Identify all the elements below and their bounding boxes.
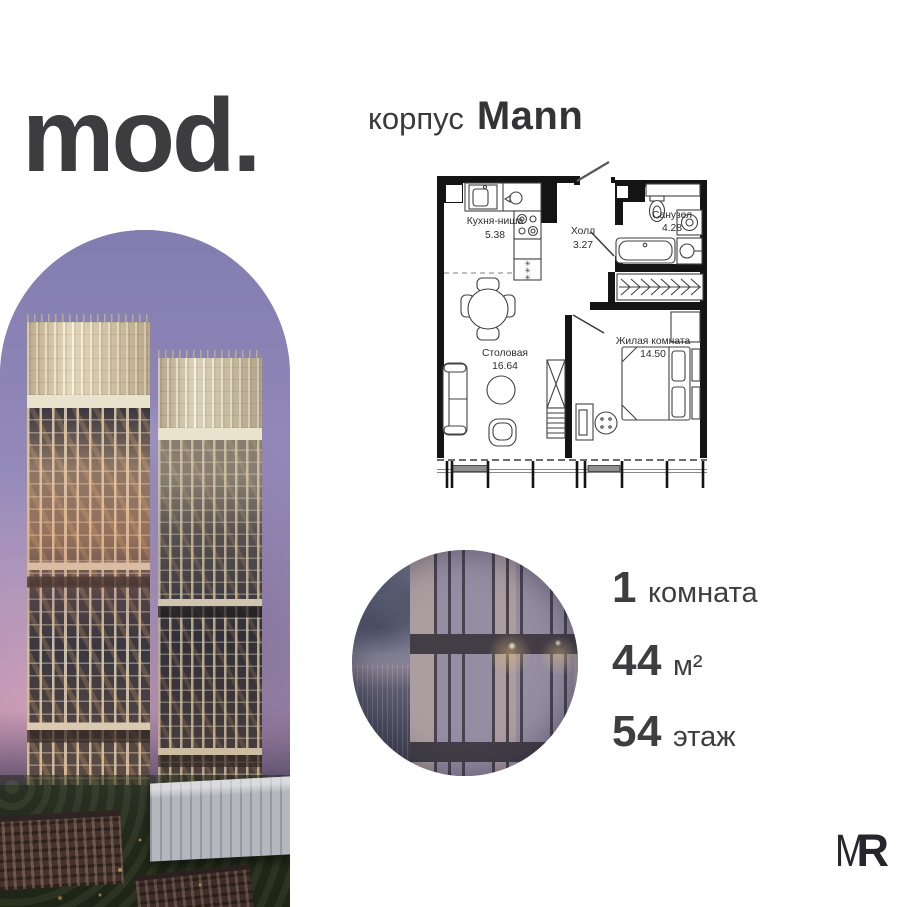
rooms-value: 1: [612, 566, 637, 610]
spec-area: 44 м²: [612, 639, 703, 683]
mr-logo-m: M: [835, 828, 866, 873]
dining-area: 16.64: [492, 361, 518, 372]
floor-unit: этаж: [673, 721, 736, 754]
floor-plan: ✳ ✳ ✳: [431, 128, 713, 490]
mod-logo: mod.: [22, 84, 258, 188]
photo-vignette: [352, 550, 578, 776]
shaft-notch: [617, 186, 628, 198]
hall-area: 3.27: [573, 240, 593, 251]
window-band: [437, 460, 707, 488]
entrance-door-icon: [577, 162, 609, 181]
area-unit: м²: [673, 650, 703, 683]
floor-plan-drawing: ✳ ✳ ✳: [431, 128, 713, 490]
desk-icon: [576, 404, 593, 440]
pouf-icon: [595, 412, 617, 434]
hall-label: Холл: [571, 226, 595, 237]
dining-table-icon: [461, 278, 515, 340]
floor-value: 54: [612, 710, 662, 754]
kitchen-area: 5.38: [485, 230, 505, 241]
bathroom-label: Санузел: [652, 210, 692, 221]
wall-notch: [446, 185, 462, 202]
spec-rooms: 1 комната: [612, 566, 758, 610]
bed-icon: [622, 312, 700, 420]
street-lights: [0, 230, 290, 907]
bathroom-area: 4.28: [662, 223, 682, 234]
fridge-icon: ✳ ✳ ✳: [524, 259, 530, 282]
closet-hangers-icon: [617, 274, 703, 300]
side-table-icon: [487, 376, 515, 404]
living-label: Жилая комната: [616, 336, 691, 347]
sofa-icon: [443, 363, 467, 435]
kitchen-counter-icon: [465, 183, 541, 211]
dining-label: Столовая: [482, 348, 528, 359]
kitchen-label: Кухня-ниша: [467, 216, 524, 227]
living-area: 14.50: [640, 349, 666, 360]
bath-shelf-icon: [646, 184, 700, 196]
svg-text:✳: ✳: [524, 273, 530, 282]
wardrobe-icon: [547, 360, 565, 438]
mr-logo: M R: [835, 828, 889, 873]
rooms-unit: комната: [648, 577, 758, 610]
towers-photo: [0, 230, 290, 907]
facade-photo: [352, 550, 578, 776]
spec-floor: 54 этаж: [612, 710, 736, 754]
area-value: 44: [612, 639, 662, 683]
real-estate-card: mod. корпус Mann: [0, 0, 907, 907]
chair-icon: [489, 419, 516, 446]
